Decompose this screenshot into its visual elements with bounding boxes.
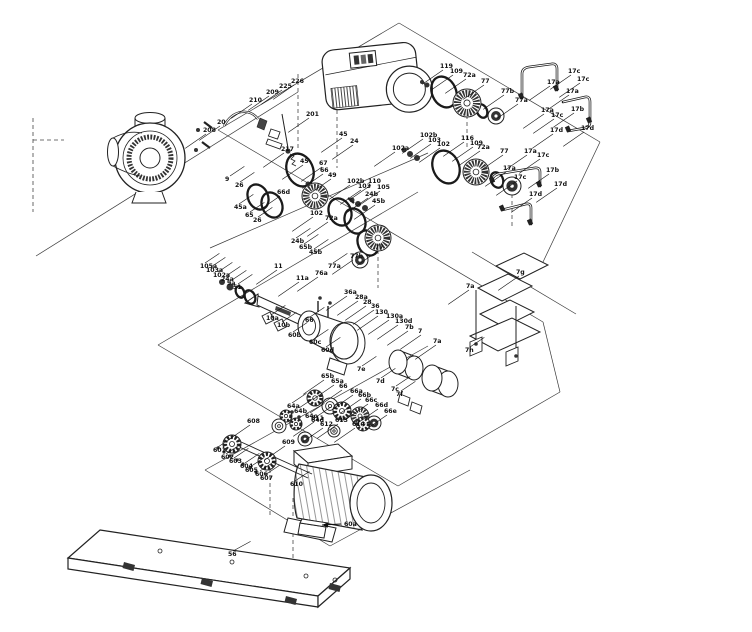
sleeve-cylinders [389,350,458,414]
seal-disc [298,432,312,446]
svg-text:60d: 60d [321,347,334,354]
part-callout-17a: 17a [523,107,554,128]
svg-text:11: 11 [274,263,283,270]
part-callout-7: 7 [400,328,422,349]
svg-text:601: 601 [213,447,226,454]
svg-text:105: 105 [377,184,390,191]
part-callout-201: 201 [288,111,319,132]
part-callout-608: 608 [229,418,260,439]
svg-text:45b: 45b [309,249,323,256]
svg-text:17a: 17a [524,148,537,155]
seal-disc [258,452,276,470]
part-callout-66d: 66d [259,189,290,210]
svg-text:51: 51 [233,284,242,291]
svg-text:72a: 72a [463,72,476,79]
part-callout-77a: 77a [497,97,528,118]
part-callout-11a: 11a [278,275,309,296]
bolt-dot [318,296,322,300]
part-callouts: 2082021020922522620121792645244567664966… [185,63,594,558]
svg-text:26: 26 [253,217,262,224]
svg-text:66e: 66e [384,408,397,415]
seal-disc [463,159,489,185]
svg-text:49: 49 [328,172,337,179]
seal-disc [453,89,481,117]
svg-text:17c: 17c [577,76,590,83]
diagram-canvas: 2082021020922522620121792645244567664966… [0,0,752,632]
exploded-parts-diagram: 2082021020922522620121792645244567664966… [0,0,752,632]
part-callout-77b: 77b [483,88,514,109]
frequency-converter [321,40,435,121]
svg-text:7g: 7g [516,269,525,276]
part-callout-7a: 7a [415,338,441,359]
part-callout-9: 9 [225,166,244,183]
seal-disc [302,183,328,209]
svg-text:607: 607 [260,475,273,482]
o-ring [427,146,465,188]
svg-text:45a: 45a [234,204,247,211]
part-callout-130: 130 [357,309,388,330]
svg-text:60c: 60c [309,339,322,346]
svg-text:217: 217 [281,146,294,153]
svg-text:201: 201 [306,111,319,118]
part-callout-7e: 7e [357,356,376,373]
part-callout-210: 210 [231,97,262,118]
part-callout-7a: 7a [448,283,474,304]
svg-text:225: 225 [279,83,292,90]
svg-text:7a: 7a [466,283,474,290]
svg-text:610: 610 [290,481,304,488]
svg-text:66d: 66d [277,189,290,196]
svg-text:24b: 24b [365,191,379,198]
svg-text:77b: 77b [501,88,515,95]
svg-text:77: 77 [375,244,384,251]
svg-text:45: 45 [339,131,348,138]
svg-text:17d: 17d [581,125,594,132]
svg-text:45b: 45b [372,198,386,205]
svg-text:24: 24 [350,138,359,145]
svg-text:60a: 60a [344,521,357,528]
pump-casing [108,113,186,204]
svg-text:17b: 17b [571,106,585,113]
bolt-dot [297,415,301,419]
part-callout-208: 208 [185,127,216,148]
svg-text:10b: 10b [277,322,291,329]
svg-text:45: 45 [300,158,309,165]
svg-text:613: 613 [335,417,348,424]
svg-text:109: 109 [450,68,463,75]
bolt-dot [425,83,430,88]
svg-text:209: 209 [266,89,279,96]
svg-text:17a: 17a [503,165,516,172]
svg-text:17d: 17d [529,191,542,198]
svg-text:609: 609 [282,439,295,446]
svg-text:77b: 77b [350,253,364,260]
motor-support-block [298,519,328,538]
seal-disc [272,419,286,433]
o-ring [244,181,273,213]
bolt-dot [328,301,332,305]
svg-text:17a: 17a [566,88,579,95]
svg-text:60b: 60b [288,332,302,339]
part-callout-24: 24 [332,138,359,159]
svg-text:210: 210 [249,97,263,104]
svg-text:7b: 7b [405,324,414,331]
svg-text:102a: 102a [392,145,409,152]
svg-text:614: 614 [352,421,366,428]
part-callout-609: 609 [264,439,295,460]
bolt-dot [414,155,420,161]
part-callout-45: 45 [321,131,347,152]
seal-disc [488,108,504,124]
svg-text:77: 77 [500,148,509,155]
svg-text:17d: 17d [554,181,567,188]
svg-text:7f: 7f [396,391,403,398]
svg-text:11a: 11a [296,275,309,282]
svg-text:72a: 72a [477,144,490,151]
svg-text:102: 102 [310,210,323,217]
svg-text:612: 612 [320,421,333,428]
svg-text:67: 67 [319,160,328,167]
bolt-dot [362,205,368,211]
svg-text:226: 226 [291,78,304,85]
mounting-clamp-assembly [470,253,548,366]
part-callout-102: 102 [292,210,323,231]
svg-text:77a: 77a [515,97,528,104]
part-callout-24b: 24b [291,228,310,245]
svg-text:77: 77 [481,78,490,85]
bolt-dot [196,128,200,132]
part-callout-72a: 72a [307,215,338,236]
seal-disc [290,418,302,430]
svg-text:17c: 17c [551,112,564,119]
svg-text:77a: 77a [328,263,341,270]
svg-text:17c: 17c [568,68,581,75]
svg-text:17d: 17d [550,127,563,134]
part-callout-17d: 17d [532,127,563,148]
pipe [502,204,531,224]
svg-text:7a: 7a [433,338,441,345]
svg-text:76a: 76a [315,270,328,277]
svg-text:10a: 10a [266,315,279,322]
svg-text:17a: 17a [547,79,560,86]
part-callout-36a: 36a [326,289,357,310]
part-callout-77a: 77a [328,253,347,270]
svg-text:608: 608 [247,418,260,425]
svg-text:26: 26 [235,182,244,189]
part-callout-28: 28 [345,299,371,320]
baseplate [68,530,350,607]
bolt-dot [194,148,198,152]
svg-text:17c: 17c [537,152,550,159]
svg-text:7d: 7d [376,378,385,385]
svg-text:102: 102 [437,141,450,148]
svg-text:17c: 17c [514,174,527,181]
svg-text:56: 56 [228,551,237,558]
svg-text:17b: 17b [546,167,560,174]
svg-text:20: 20 [217,119,226,126]
svg-text:7h: 7h [465,347,474,354]
svg-text:9: 9 [225,176,229,183]
svg-text:72a: 72a [325,215,338,222]
svg-text:7e: 7e [357,366,366,373]
svg-text:7: 7 [418,328,422,335]
svg-text:66: 66 [339,383,348,390]
